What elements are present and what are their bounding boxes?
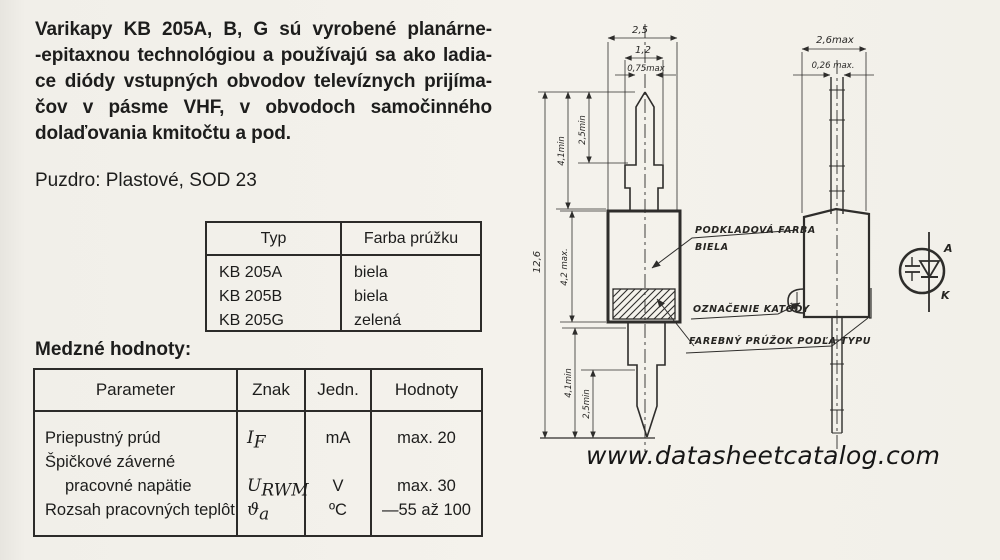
unit-cell: mA [306,426,370,450]
callout-color-stripe: FAREBNÝ PRÚŽOK PODĽA TYPU [689,335,871,347]
dim-flange-width: 1,2 [635,45,651,56]
type-table: Typ Farba prúžku KB 205A KB 205B KB 205G… [205,221,482,332]
dim-lead-width: 0,75max [627,64,665,74]
intro-line: Varikapy KB 205A, B, G sú vyrobené planá… [35,17,492,43]
symbol-cell: IF [238,426,304,450]
parameter-cell: pracovné napätie [35,474,236,498]
type-cell: KB 205G [219,309,340,333]
intro-line: čov v pásme VHF, v obvodoch samočinného [35,95,492,121]
dim-lead-bottom: 4,1min [564,368,574,398]
callout-base-color-2: BIELA [695,242,729,253]
datasheet-page: Varikapy KB 205A, B, G sú vyrobené planá… [0,0,1000,560]
type-cell: KB 205B [219,285,340,309]
limits-symbols: IF URWM ϑa [238,412,306,535]
callout-base-color-1: PODKLADOVÁ FARBA [695,224,816,236]
dim-tip-top: 2,5min [578,115,588,145]
type-table-col-type: Typ [207,223,342,254]
color-cell: biela [354,285,480,309]
side-dimension-lines [793,49,874,213]
limits-table: Parameter Znak Jedn. Hodnoty Priepustný … [33,368,483,537]
front-view-outline [608,24,680,452]
limits-col-symbol: Znak [238,370,306,410]
value-cell [372,450,481,474]
limits-units: mA V ºC [306,412,372,535]
value-cell: max. 30 [372,474,481,498]
parameter-cell: Rozsah pracovných teplôt [35,498,236,522]
limits-heading: Medzné hodnoty: [35,339,191,361]
side-dimension-labels: 2,6max 0,26 max. [812,35,855,71]
symbol-sub: a [259,504,269,524]
intro-line: ce diódy vstupných obvodov televíznych p… [35,69,492,95]
callout-cathode-mark: OZNAČENIE KATÓDY [693,303,810,315]
watermark: www.datasheetcatalog.com [586,441,940,470]
unit-cell: ºC [306,498,370,522]
dim-tip-bottom: 2,5min [582,389,592,419]
side-view-outline [788,60,871,450]
intro-paragraph: Varikapy KB 205A, B, G sú vyrobené planá… [35,17,492,147]
type-cell: KB 205A [219,261,340,285]
package-drawing: 2,5 1,2 0,75max 12,6 4,1min 2,5min 4,2 m… [520,0,1000,480]
color-cell: zelená [354,309,480,333]
dim-lead-top: 4,1min [557,136,567,166]
type-table-col-color: Farba prúžku [342,223,480,254]
parameter-cell: Priepustný prúd [35,426,236,450]
unit-cell: V [306,474,370,498]
dim-body-width: 2,5 [632,25,648,36]
varicap-symbol: A K [900,232,953,312]
symbol-main: ϑ [247,500,259,520]
intro-line: -epitaxnou technológiou a používajú sa a… [35,43,492,69]
symbol-main: I [247,428,254,448]
top-lead-right [645,92,663,211]
symbol-cell: ϑa [238,498,304,522]
limits-col-values: Hodnoty [372,370,481,410]
symbol-sub: F [254,432,266,452]
type-table-types: KB 205A KB 205B KB 205G [207,256,342,330]
dim-side-lead-thickness: 0,26 max. [812,61,855,71]
dim-total-length: 12,6 [532,251,543,273]
limits-col-parameter: Parameter [35,370,238,410]
front-dimension-labels: 2,5 1,2 0,75max 12,6 4,1min 2,5min 4,2 m… [532,25,666,419]
color-cell: biela [354,261,480,285]
value-cell: max. 20 [372,426,481,450]
limits-values: max. 20 max. 30 —55 až 100 [372,412,481,535]
limits-table-header: Parameter Znak Jedn. Hodnoty [35,370,481,412]
callout-leaders [652,230,868,353]
symbol-main: U [247,476,261,496]
symbol-cell: URWM [238,474,304,498]
value-cell: —55 až 100 [372,498,481,522]
bottom-lead-left [628,322,647,437]
top-lead-left [625,92,645,211]
cathode-label: K [941,289,951,302]
symbol-cell [238,450,304,474]
anode-label: A [943,242,953,255]
package-line: Puzdro: Plastové, SOD 23 [35,170,257,192]
type-table-header: Typ Farba prúžku [207,223,480,256]
unit-cell [306,450,370,474]
limits-parameters: Priepustný prúd Špičkové záverné pracovn… [35,412,238,535]
dim-side-body-width: 2,6max [816,35,854,46]
intro-line: dolaďovania kmitočtu a pod. [35,121,492,147]
cathode-stripe-band [613,289,675,319]
callout-labels: PODKLADOVÁ FARBA BIELA OZNAČENIE KATÓDY … [689,224,871,347]
type-table-colors: biela biela zelená [342,256,480,330]
limits-col-unit: Jedn. [306,370,372,410]
dim-body-length: 4,2 max. [560,248,570,285]
parameter-cell: Špičkové záverné [35,450,236,474]
symbol-circle [900,249,944,293]
bottom-lead-right [647,322,665,437]
